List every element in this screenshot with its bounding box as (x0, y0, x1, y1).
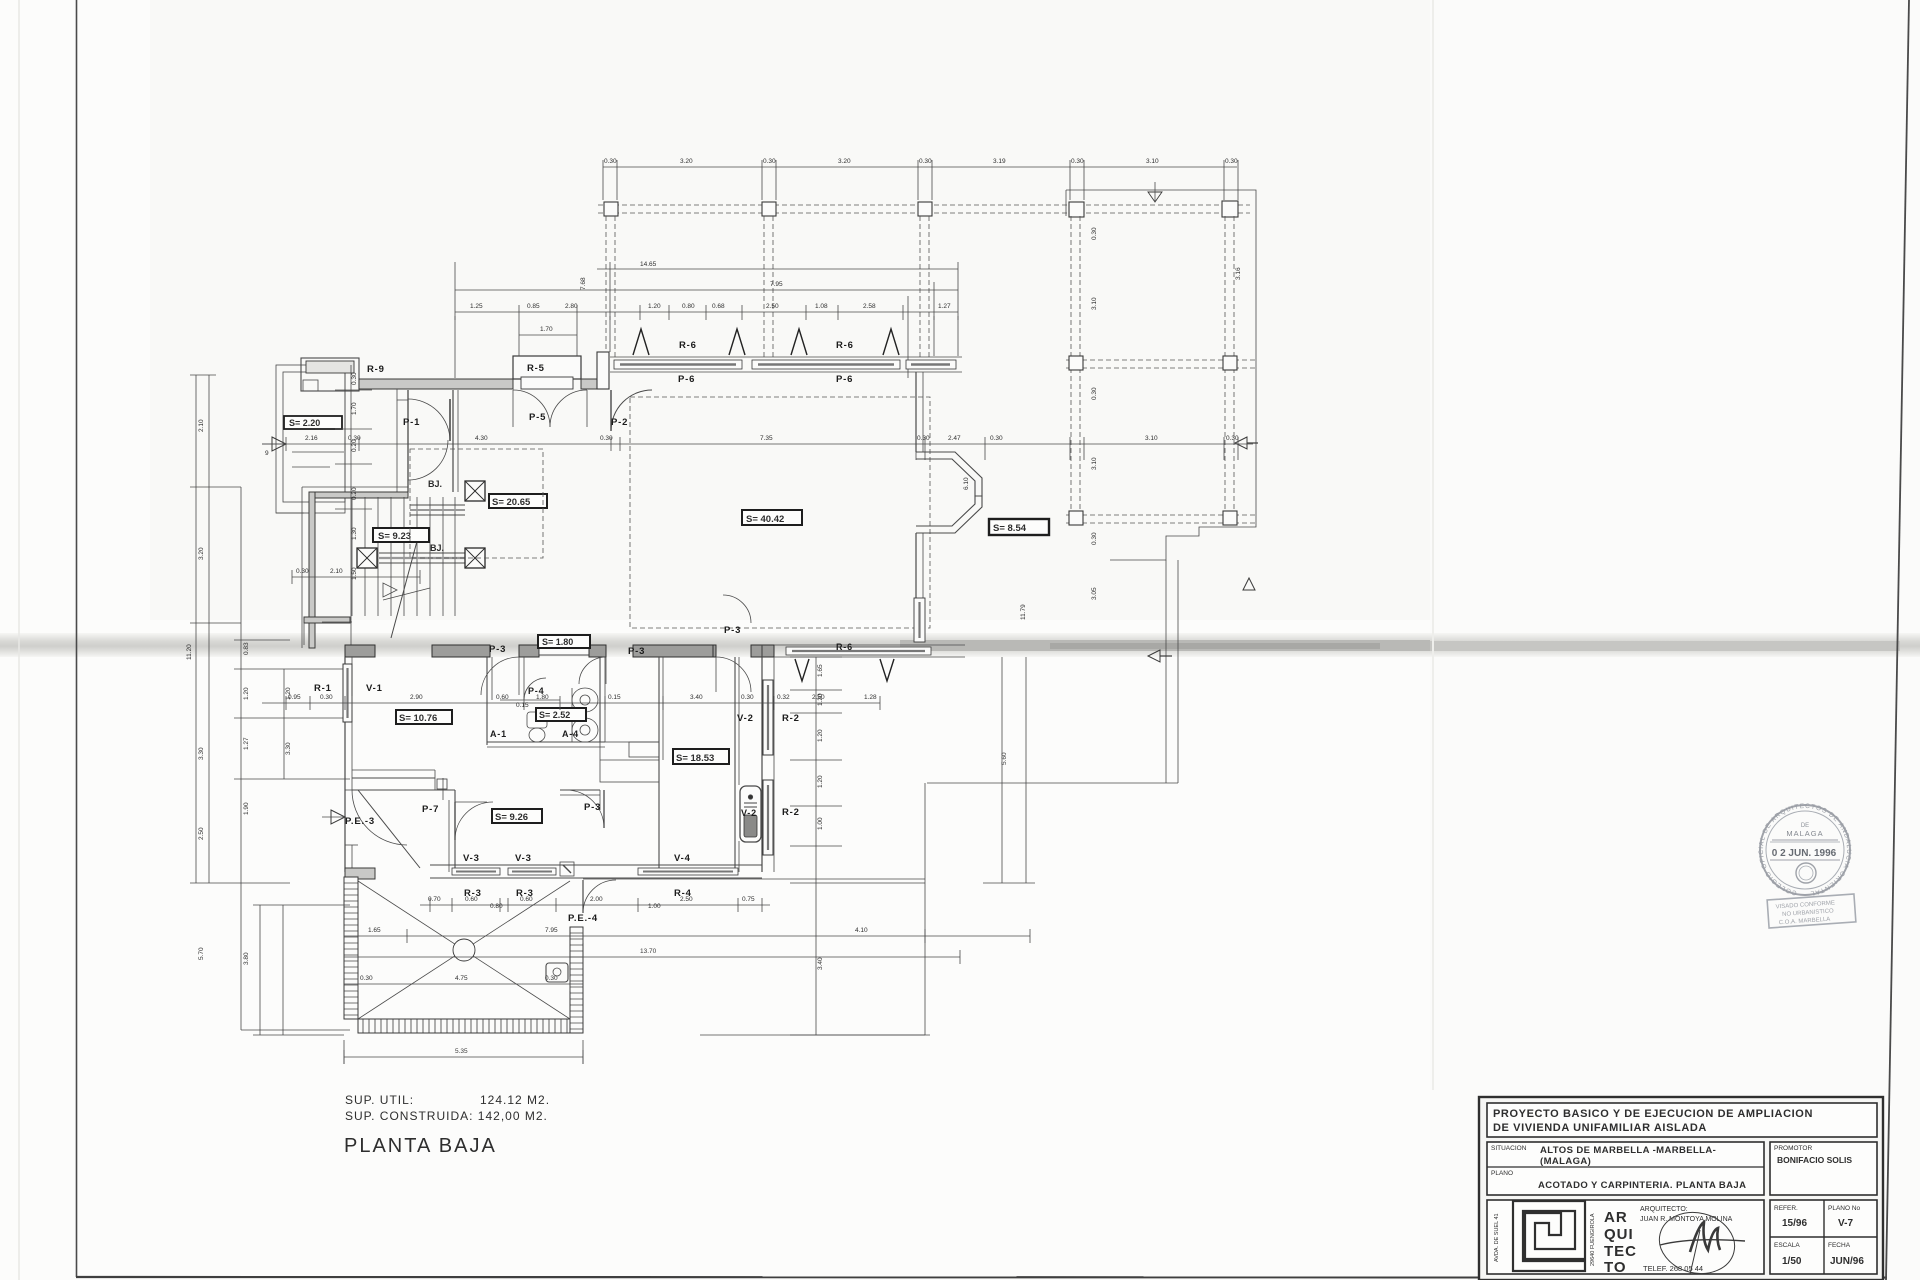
svg-text:S= 2.52: S= 2.52 (539, 710, 570, 720)
svg-text:JUN/96: JUN/96 (1830, 1256, 1864, 1267)
svg-text:0.30: 0.30 (919, 158, 932, 165)
svg-text:S= 10.76: S= 10.76 (399, 713, 437, 724)
svg-text:29640 FUENGIROLA: 29640 FUENGIROLA (1590, 1213, 1596, 1266)
svg-text:3.10: 3.10 (1091, 297, 1098, 310)
svg-text:2.50: 2.50 (680, 896, 693, 903)
svg-text:6.10: 6.10 (963, 477, 970, 490)
svg-text:2.00: 2.00 (590, 896, 603, 903)
svg-text:0.30: 0.30 (1091, 532, 1098, 545)
svg-text:1.28: 1.28 (864, 694, 877, 701)
svg-text:2.10: 2.10 (330, 568, 343, 575)
svg-text:TO: TO (1604, 1259, 1627, 1276)
svg-text:0.30: 0.30 (990, 435, 1003, 442)
svg-text:0.30: 0.30 (1091, 387, 1098, 400)
svg-text:3.40: 3.40 (690, 694, 703, 701)
svg-text:0.30: 0.30 (1091, 227, 1098, 240)
svg-text:0.75: 0.75 (742, 896, 755, 903)
svg-text:5.70: 5.70 (198, 947, 205, 960)
svg-text:0.20: 0.20 (351, 439, 358, 452)
svg-text:2.90: 2.90 (410, 694, 423, 701)
svg-text:0.30: 0.30 (360, 975, 373, 982)
svg-text:5.35: 5.35 (455, 1048, 468, 1055)
svg-text:0.30: 0.30 (763, 158, 776, 165)
svg-text:3.30: 3.30 (285, 742, 292, 755)
svg-text:AVDA. DE SUEL 41: AVDA. DE SUEL 41 (1494, 1213, 1500, 1262)
svg-text:ESCALA: ESCALA (1774, 1242, 1800, 1249)
svg-text:1.00: 1.00 (648, 903, 661, 910)
svg-text:1.65: 1.65 (368, 927, 381, 934)
svg-text:ACOTADO Y CARPINTERIA. PLANTA: ACOTADO Y CARPINTERIA. PLANTA BAJA (1538, 1180, 1746, 1191)
svg-text:3.30: 3.30 (198, 747, 205, 760)
svg-text:0.30: 0.30 (600, 435, 613, 442)
svg-text:P-6: P-6 (836, 374, 853, 385)
svg-text:0.95: 0.95 (288, 694, 301, 701)
svg-text:0 2 JUN. 1996: 0 2 JUN. 1996 (1772, 848, 1837, 859)
svg-text:PLANO No: PLANO No (1828, 1205, 1861, 1212)
svg-text:9: 9 (265, 450, 269, 457)
svg-text:V-3: V-3 (463, 853, 480, 864)
svg-text:S= 1.80: S= 1.80 (542, 637, 573, 647)
svg-text:3.10: 3.10 (1091, 457, 1098, 470)
svg-text:P-6: P-6 (678, 374, 695, 385)
svg-text:QUI: QUI (1604, 1226, 1634, 1243)
svg-text:2.47: 2.47 (948, 435, 961, 442)
svg-text:0.60: 0.60 (520, 896, 533, 903)
svg-text:0.30: 0.30 (545, 975, 558, 982)
svg-text:P-3: P-3 (489, 644, 506, 655)
svg-text:15/96: 15/96 (1782, 1218, 1807, 1229)
svg-text:0.60: 0.60 (496, 694, 509, 701)
svg-text:2.50: 2.50 (198, 827, 205, 840)
svg-text:TELEF. 268 05 44: TELEF. 268 05 44 (1643, 1264, 1703, 1273)
svg-text:R-1: R-1 (314, 683, 332, 694)
svg-text:7.95: 7.95 (545, 927, 558, 934)
svg-text:4.75: 4.75 (455, 975, 468, 982)
svg-text:PLANTA BAJA: PLANTA BAJA (344, 1135, 497, 1157)
svg-text:(MALAGA): (MALAGA) (1540, 1156, 1591, 1167)
svg-text:R-2: R-2 (782, 713, 800, 724)
svg-text:V-2: V-2 (741, 808, 757, 818)
svg-text:V-1: V-1 (366, 683, 383, 694)
svg-text:2.10: 2.10 (198, 419, 205, 432)
svg-text:3.20: 3.20 (198, 547, 205, 560)
svg-text:0.30: 0.30 (320, 694, 333, 701)
svg-text:V-4: V-4 (674, 853, 691, 864)
svg-text:0.30: 0.30 (1226, 435, 1239, 442)
svg-text:V-7: V-7 (1838, 1218, 1853, 1229)
svg-text:MALAGA: MALAGA (1786, 829, 1823, 838)
svg-text:P.E.-3: P.E.-3 (345, 816, 375, 827)
svg-text:1.25: 1.25 (470, 303, 483, 310)
svg-text:P-5: P-5 (529, 412, 546, 423)
svg-text:0.30: 0.30 (1225, 158, 1238, 165)
svg-text:1.20: 1.20 (243, 687, 250, 700)
svg-text:S= 9.26: S= 9.26 (495, 812, 528, 823)
svg-text:1.70: 1.70 (351, 402, 358, 415)
svg-text:1/50: 1/50 (1782, 1256, 1802, 1267)
svg-text:0.15: 0.15 (608, 694, 621, 701)
svg-text:3.19: 3.19 (993, 158, 1006, 165)
svg-text:1.30: 1.30 (351, 527, 358, 540)
svg-text:5.60: 5.60 (1001, 752, 1008, 765)
svg-text:DE VIVIENDA UNIFAMILIAR AISLAD: DE VIVIENDA UNIFAMILIAR AISLADA (1493, 1122, 1707, 1134)
svg-text:1.65: 1.65 (817, 664, 824, 677)
svg-text:0.60: 0.60 (465, 896, 478, 903)
svg-text:0.30: 0.30 (296, 568, 309, 575)
svg-text:11.20: 11.20 (186, 644, 193, 660)
svg-text:P-3: P-3 (724, 625, 741, 636)
svg-text:1.90: 1.90 (243, 802, 250, 815)
svg-text:3.05: 3.05 (1091, 587, 1098, 600)
svg-text:3.20: 3.20 (680, 158, 693, 165)
svg-text:R-9: R-9 (367, 364, 385, 375)
svg-text:1.27: 1.27 (938, 303, 951, 310)
svg-text:P-7: P-7 (422, 804, 439, 815)
svg-text:R-2: R-2 (782, 807, 800, 818)
svg-text:AR: AR (1604, 1209, 1628, 1226)
svg-text:13.70: 13.70 (640, 948, 657, 955)
svg-text:0.30: 0.30 (741, 694, 754, 701)
svg-text:1.20: 1.20 (648, 303, 661, 310)
svg-text:A-4: A-4 (562, 729, 579, 739)
svg-text:SUP. UTIL:: SUP. UTIL: (345, 1093, 414, 1107)
svg-text:S= 18.53: S= 18.53 (676, 753, 714, 764)
svg-text:S= 20.65: S= 20.65 (492, 497, 531, 508)
svg-text:124.12 M2.: 124.12 M2. (480, 1093, 550, 1107)
svg-text:A-1: A-1 (490, 729, 507, 739)
svg-text:0.80: 0.80 (490, 903, 503, 910)
svg-text:1.20: 1.20 (817, 729, 824, 742)
svg-text:P-2: P-2 (611, 417, 628, 428)
svg-text:0.70: 0.70 (428, 896, 441, 903)
svg-text:11.79: 11.79 (1020, 604, 1027, 620)
svg-text:7.68: 7.68 (580, 277, 587, 290)
svg-text:1.08: 1.08 (815, 303, 828, 310)
svg-text:0.68: 0.68 (712, 303, 725, 310)
svg-text:S= 8.54: S= 8.54 (993, 523, 1027, 534)
svg-text:1.50: 1.50 (351, 567, 358, 580)
svg-text:PLANO: PLANO (1491, 1170, 1513, 1177)
svg-text:R-6: R-6 (836, 340, 854, 351)
svg-text:0.20: 0.20 (351, 487, 358, 500)
svg-text:0.15: 0.15 (516, 702, 529, 709)
svg-text:PROMOTOR: PROMOTOR (1774, 1145, 1812, 1152)
svg-text:ALTOS DE MARBELLA -MARBELLA-: ALTOS DE MARBELLA -MARBELLA- (1540, 1145, 1716, 1156)
svg-text:P.E.-4: P.E.-4 (568, 913, 598, 924)
svg-text:SUP. CONSTRUIDA: 142,00 M2.: SUP. CONSTRUIDA: 142,00 M2. (345, 1109, 548, 1123)
svg-text:P-1: P-1 (403, 417, 420, 428)
svg-text:V-2: V-2 (737, 713, 754, 724)
svg-text:ARQUITECTO:: ARQUITECTO: (1640, 1206, 1688, 1213)
svg-text:R-5: R-5 (527, 363, 545, 374)
svg-text:P-3: P-3 (584, 802, 601, 813)
svg-text:BJ.: BJ. (428, 479, 442, 489)
svg-text:S= 2.20: S= 2.20 (289, 418, 320, 428)
svg-text:2.80: 2.80 (565, 303, 578, 310)
svg-text:3.16: 3.16 (1235, 267, 1242, 280)
svg-text:S= 9.23: S= 9.23 (378, 531, 411, 542)
svg-text:3.10: 3.10 (1145, 435, 1158, 442)
svg-text:S= 40.42: S= 40.42 (746, 514, 784, 525)
svg-text:14.65: 14.65 (640, 261, 657, 268)
svg-text:4.30: 4.30 (475, 435, 488, 442)
svg-text:7.95: 7.95 (770, 281, 783, 288)
svg-text:7.35: 7.35 (760, 435, 773, 442)
svg-text:1.27: 1.27 (243, 737, 250, 750)
svg-text:FECHA: FECHA (1828, 1242, 1851, 1249)
svg-text:PROYECTO BASICO Y DE EJECUCION: PROYECTO BASICO Y DE EJECUCION DE AMPLIA… (1493, 1108, 1813, 1120)
svg-text:2.50: 2.50 (766, 303, 779, 310)
svg-text:0.80: 0.80 (682, 303, 695, 310)
svg-text:1.80: 1.80 (536, 694, 549, 701)
svg-text:R-6: R-6 (836, 642, 853, 652)
svg-text:0.32: 0.32 (777, 694, 790, 701)
svg-text:R-6: R-6 (679, 340, 697, 351)
svg-text:P-3: P-3 (628, 646, 645, 657)
svg-text:V-3: V-3 (515, 853, 532, 864)
svg-text:3.80: 3.80 (243, 952, 250, 965)
svg-text:SITUACION: SITUACION (1491, 1145, 1527, 1152)
svg-text:BONIFACIO SOLIS: BONIFACIO SOLIS (1777, 1155, 1852, 1165)
svg-text:1.00: 1.00 (817, 817, 824, 830)
svg-text:0.30: 0.30 (1071, 158, 1084, 165)
svg-text:3.40: 3.40 (817, 957, 824, 970)
svg-text:1.20: 1.20 (817, 693, 824, 706)
svg-text:0.30: 0.30 (604, 158, 617, 165)
svg-text:0.83: 0.83 (243, 642, 250, 655)
svg-text:4.10: 4.10 (855, 927, 868, 934)
svg-text:BJ.: BJ. (430, 543, 444, 553)
svg-text:3.20: 3.20 (838, 158, 851, 165)
svg-text:1.70: 1.70 (540, 326, 553, 333)
svg-text:0.30: 0.30 (351, 372, 358, 385)
svg-text:0.85: 0.85 (527, 303, 540, 310)
svg-text:TEC: TEC (1604, 1243, 1637, 1260)
svg-text:REFER.: REFER. (1774, 1205, 1798, 1212)
svg-text:3.10: 3.10 (1146, 158, 1159, 165)
svg-text:1.20: 1.20 (817, 775, 824, 788)
svg-text:0.30: 0.30 (917, 435, 930, 442)
svg-text:2.58: 2.58 (863, 303, 876, 310)
svg-text:JUAN R. MONTOYA MOLINA: JUAN R. MONTOYA MOLINA (1640, 1216, 1733, 1223)
svg-text:2.16: 2.16 (305, 435, 318, 442)
